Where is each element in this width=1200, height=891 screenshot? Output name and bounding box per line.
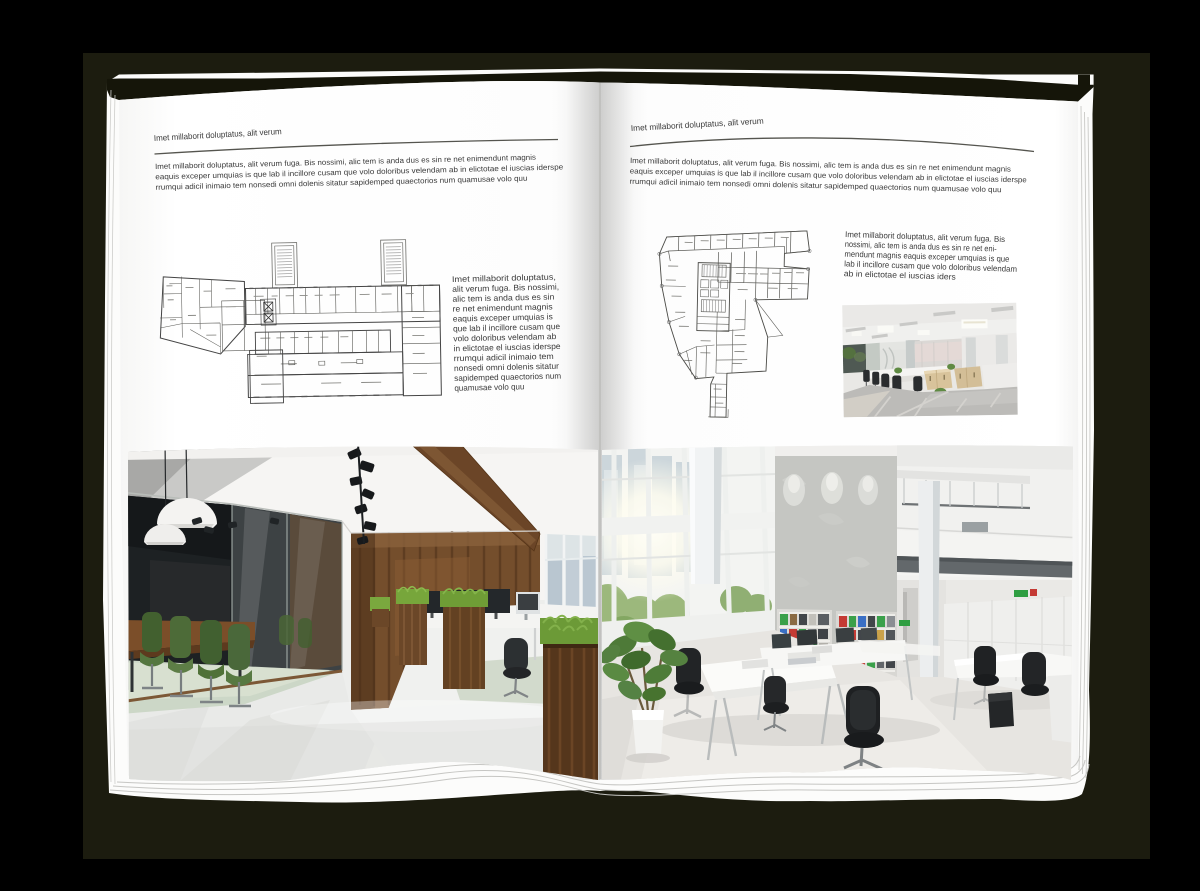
- svg-text:quamusae volo quu: quamusae volo quu: [454, 382, 525, 393]
